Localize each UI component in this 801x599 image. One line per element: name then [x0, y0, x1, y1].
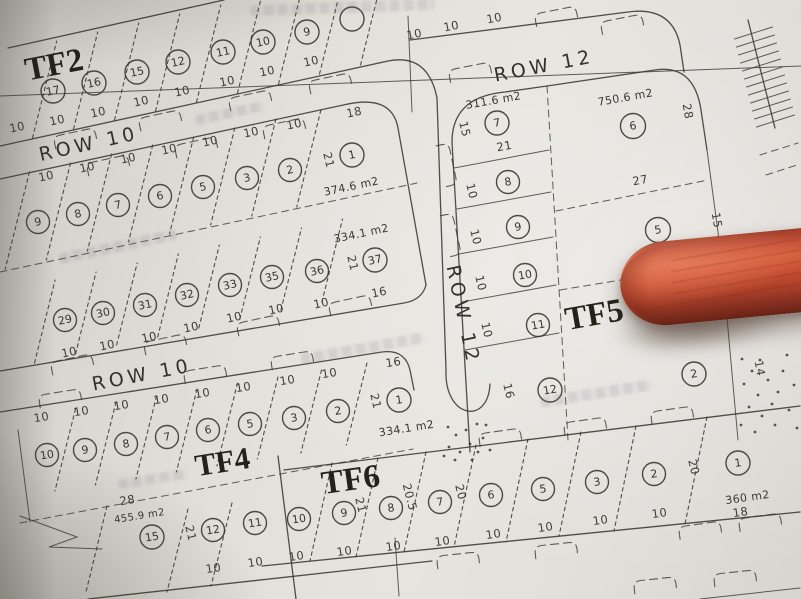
- lot-number: 32: [179, 287, 195, 303]
- lot-number: 6: [628, 119, 637, 133]
- lot-number: 17: [45, 83, 61, 99]
- dim-label: 10: [160, 141, 178, 158]
- dim-label: 10: [153, 391, 171, 407]
- block-label-tf6: TF6: [319, 458, 382, 502]
- dim-label: 21: [344, 254, 361, 273]
- lot-number: 9: [340, 506, 349, 520]
- dim-label: 10: [485, 10, 503, 27]
- lot-number: 7: [113, 198, 123, 212]
- dim-label: 16: [370, 284, 388, 301]
- dim-label: 10: [8, 119, 26, 136]
- dim-label: 10: [98, 337, 116, 354]
- lot-number: 2: [650, 467, 659, 481]
- block-tf6: TF6 10 9 8 7 6 5 3 2 1 10 10 10 10 10 10…: [288, 451, 771, 564]
- lot-number: 2: [334, 404, 343, 418]
- lot-number: 6: [487, 488, 496, 502]
- dim-label: 10: [119, 150, 137, 167]
- lot-number: 7: [492, 116, 501, 130]
- dim-label: 15: [456, 120, 473, 139]
- dim-label: 10: [592, 512, 609, 528]
- dim-label: 10: [442, 18, 460, 35]
- lot-number: 5: [246, 417, 255, 431]
- area-label: 360 m2: [725, 488, 771, 507]
- lot-number: 2: [285, 163, 295, 177]
- lot-number: 30: [95, 305, 111, 321]
- lot-number: 31: [137, 297, 153, 313]
- lot-number: 5: [653, 223, 662, 237]
- lot-number: 1: [734, 456, 743, 470]
- area-label: 311.6 m2: [465, 89, 522, 112]
- dim-label: 20: [685, 458, 702, 477]
- dim-label: 10: [485, 526, 502, 542]
- lot-number: 1: [395, 393, 404, 407]
- lot-number: 11: [530, 317, 546, 332]
- dim-label: 21: [367, 392, 384, 411]
- dim-label: 10: [132, 93, 150, 110]
- block-label-tf4: TF4: [192, 440, 252, 483]
- dim-label: 10: [194, 385, 212, 401]
- lot-number: 15: [129, 64, 145, 80]
- lot-number: 5: [198, 180, 208, 194]
- lot-number: 8: [73, 207, 83, 221]
- dim-label: 20: [452, 483, 469, 502]
- lot-number: 3: [242, 171, 252, 185]
- lot-number: 3: [593, 475, 602, 489]
- pen-ridges: [669, 237, 801, 311]
- lot-number: 7: [163, 430, 172, 444]
- dim-label: 10: [89, 104, 107, 121]
- dim-label: 10: [78, 159, 96, 176]
- dim-label: 10: [312, 295, 330, 312]
- stipple-culdesac: [443, 423, 492, 462]
- lot-number: 9: [302, 25, 312, 39]
- dim-label: 27: [631, 172, 649, 189]
- stipple-dots: [443, 354, 799, 462]
- lot-number: 37: [367, 252, 383, 268]
- dim-label: 10: [279, 372, 297, 388]
- plat-map-photo: TF2 17 16 15 12 11 10 9 10 10 10 10 10 1…: [0, 0, 801, 599]
- dim-label: 10: [478, 321, 495, 340]
- dim-label: 10: [247, 554, 264, 570]
- hatch-band: [735, 27, 795, 127]
- lot-number: 29: [57, 312, 73, 328]
- lot-number: 9: [81, 443, 90, 457]
- dim-label: 10: [242, 124, 260, 141]
- lot-number: 11: [247, 515, 263, 530]
- dim-label: 10: [33, 409, 51, 425]
- lot-number: 6: [204, 423, 213, 437]
- dim-label: 10: [385, 538, 402, 554]
- area-label: 750.6 m2: [597, 86, 654, 109]
- lot-number: 11: [215, 44, 231, 60]
- block-tf2: TF2 17 16 15 12 11 10 9 10 10 10 10 10 1…: [8, 7, 364, 136]
- dim-label: 28: [680, 102, 697, 120]
- dim-label: 18: [345, 104, 363, 121]
- lot-number: 12: [205, 522, 221, 537]
- dim-label: 10: [235, 379, 253, 395]
- lot-number: 3: [290, 411, 299, 425]
- lot-number: 16: [86, 75, 102, 91]
- dim-label: 21: [495, 138, 513, 155]
- dim-label: 10: [73, 403, 91, 419]
- dim-label: 10: [537, 519, 554, 535]
- dim-label: 14: [752, 359, 769, 377]
- lot-number: 1: [347, 148, 357, 162]
- dim-label: 10: [336, 543, 353, 559]
- stipple-east: [740, 354, 799, 434]
- lot-number: 10: [517, 267, 533, 282]
- area-label: 455.9 m2: [114, 507, 166, 526]
- dim-label: 10: [140, 329, 158, 346]
- dim-label: 10: [405, 26, 423, 43]
- north-lot-dims: 10 10 10: [405, 10, 503, 43]
- dim-label: 10: [201, 133, 219, 150]
- lot-number: 8: [122, 437, 131, 451]
- lot-number: 33: [222, 277, 238, 293]
- area-label: 374.6 m2: [323, 174, 380, 198]
- dim-label: 10: [302, 53, 320, 70]
- dim-label: 16: [385, 354, 403, 370]
- lot-number: 9: [513, 220, 522, 234]
- dim-label: 10: [173, 83, 191, 100]
- lot-number: 10: [255, 34, 271, 50]
- dim-label: 15: [709, 211, 726, 229]
- dim-label: 21: [320, 151, 337, 170]
- dim-label: 10: [434, 533, 451, 549]
- lot-number: 12: [170, 54, 186, 70]
- lot-number: 7: [436, 495, 445, 509]
- dim-label: 10: [467, 228, 484, 247]
- lot-number: 15: [144, 529, 160, 544]
- dim-label: 10: [267, 301, 285, 318]
- dim-label: 28: [119, 492, 137, 508]
- dim-label: 10: [288, 548, 305, 564]
- dim-label: 10: [651, 505, 668, 521]
- dim-label: 10: [258, 63, 276, 80]
- block-label-tf2: TF2: [22, 42, 86, 89]
- area-label: 334.1 m2: [378, 418, 435, 440]
- lot-number: 36: [309, 263, 325, 279]
- dim-label: 16: [500, 382, 517, 401]
- lot-number: 10: [39, 447, 55, 462]
- lot-number: 8: [503, 175, 512, 189]
- lot-number: 8: [387, 501, 396, 515]
- block-b: 29 30 31 32 33 35 36 37 10 10 10 10 10 1…: [54, 221, 390, 360]
- lot-number: 5: [539, 482, 548, 496]
- dim-label: 10: [182, 319, 200, 336]
- street-label-row12-top: ROW 12: [492, 46, 596, 87]
- lot-number: 2: [689, 367, 698, 381]
- lot-number: 9: [33, 215, 43, 229]
- dim-label: 10: [321, 365, 339, 381]
- dim-label: 21: [182, 524, 199, 543]
- dim-label: 10: [472, 274, 489, 293]
- lot-number: 6: [155, 189, 165, 203]
- dim-label: 10: [48, 112, 66, 129]
- dim-label: 18: [732, 504, 749, 520]
- dim-label: 10: [37, 168, 55, 185]
- dim-label: 10: [113, 397, 131, 413]
- dim-label: 10: [285, 116, 303, 133]
- dim-label: 10: [463, 182, 480, 201]
- lot-number: 35: [264, 269, 280, 285]
- dim-label: 10: [205, 560, 222, 576]
- lot-number: 10: [291, 512, 307, 527]
